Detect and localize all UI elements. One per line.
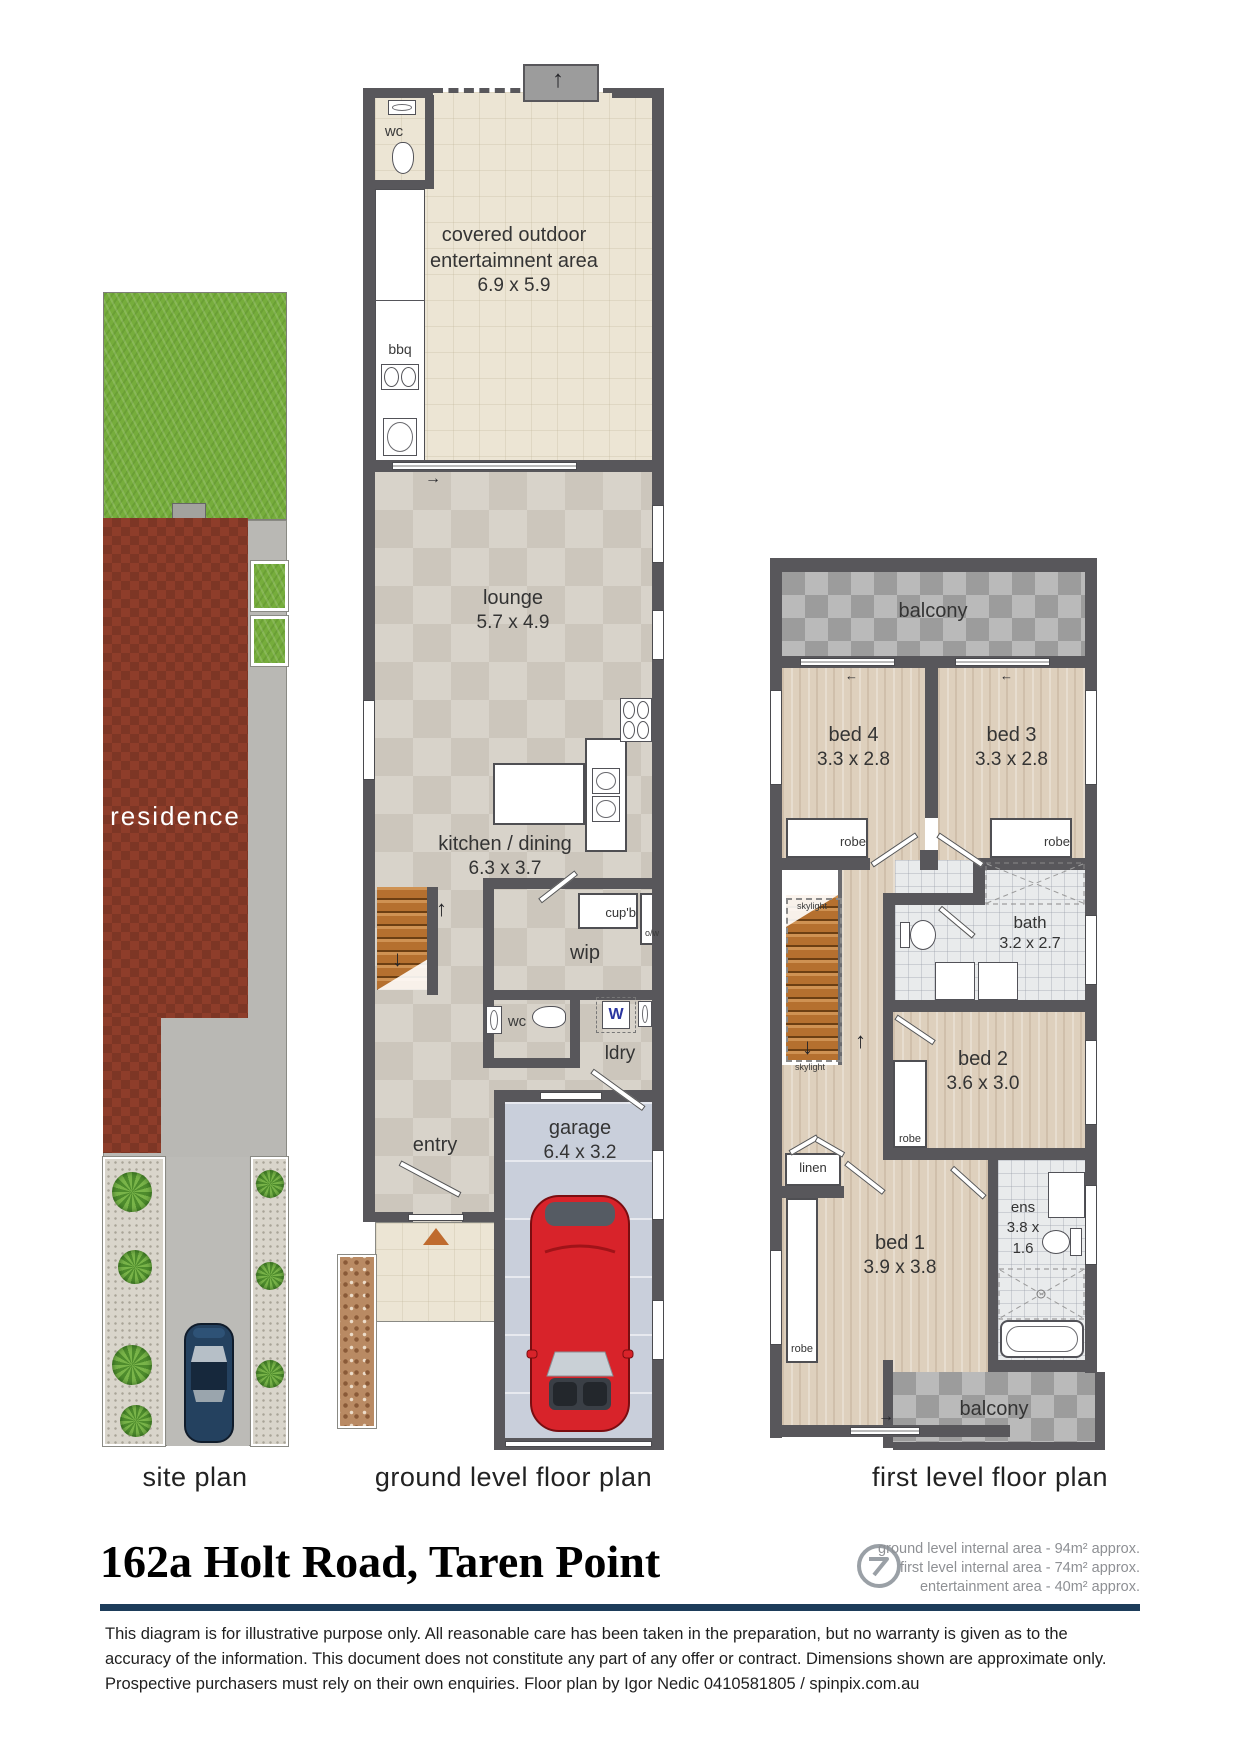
wall [363, 95, 375, 1222]
divider-rule [100, 1604, 1140, 1611]
wall [1095, 1372, 1105, 1448]
area-line: ground level internal area - 94m² approx… [740, 1540, 1140, 1559]
lounge-label: lounge 5.7 x 4.9 [413, 585, 613, 636]
plant-icon [112, 1345, 152, 1385]
bath-label: bath 3.2 x 2.7 [980, 912, 1080, 955]
window [1085, 1185, 1097, 1265]
cooktop-icon [381, 364, 419, 390]
wall [652, 88, 664, 1450]
skylight-label-top: skylight [786, 901, 838, 913]
bed2-label: bed 2 3.6 x 3.0 [908, 1046, 1058, 1097]
area-line: first level internal area - 74m² approx. [740, 1559, 1140, 1578]
wall [883, 1148, 1085, 1160]
window [652, 505, 664, 563]
up-arrow-icon: ↑ [436, 896, 447, 922]
up-arrow-icon: ↑ [855, 1028, 866, 1054]
window [652, 610, 664, 660]
ens-label: ens 3.8 x 1.6 [990, 1198, 1056, 1259]
site-plan-caption: site plan [103, 1462, 287, 1493]
sliding-door [800, 658, 895, 666]
cupboard-label: cup'b [580, 905, 636, 922]
planter-box [251, 616, 288, 666]
porch-arrow-icon [423, 1228, 449, 1245]
left-arrow-icon: ← [1000, 668, 1013, 683]
sliding-door [392, 462, 577, 470]
toilet-icon [910, 920, 936, 950]
window [770, 690, 782, 785]
toilet-icon [392, 142, 414, 174]
down-arrow-icon: ↓ [392, 946, 403, 972]
wall [425, 95, 434, 187]
plant-icon [118, 1250, 152, 1284]
linen-label: linen [785, 1160, 841, 1177]
toilet-icon [532, 1006, 566, 1028]
wall [883, 893, 895, 1012]
bed4-label: bed 4 3.3 x 2.8 [782, 722, 925, 773]
down-arrow-icon: ↓ [802, 1034, 813, 1060]
sliding-door [850, 1427, 920, 1435]
wall [483, 990, 664, 1000]
residence-area-extension [103, 1017, 161, 1153]
right-arrow-icon: → [425, 470, 441, 488]
residence-label: residence [103, 800, 248, 834]
plant-icon [120, 1405, 152, 1437]
window [652, 1300, 664, 1360]
toilet-icon [1070, 1228, 1082, 1256]
balcony-top-label: balcony [833, 598, 1033, 624]
window [1085, 915, 1097, 985]
vanity-basin-icon [935, 962, 975, 1000]
bed3-label: bed 3 3.3 x 2.8 [938, 722, 1085, 773]
bbq-label: bbq [375, 340, 425, 358]
up-arrow-icon: ↑ [552, 66, 564, 94]
balcony-bottom-label: balcony [894, 1396, 1094, 1422]
skylight-outline [786, 898, 842, 1062]
wall [483, 1058, 580, 1068]
kitchen-label: kitchen / dining 6.3 x 3.7 [405, 831, 605, 882]
wall [363, 1212, 413, 1222]
plant-icon [256, 1360, 284, 1388]
plant-icon [112, 1172, 152, 1212]
counter-divider [375, 300, 425, 301]
window [363, 700, 375, 780]
wip-label: wip [540, 940, 630, 966]
wc-top-label: wc [375, 122, 413, 142]
cooktop-icon [620, 698, 652, 742]
entry-door [408, 1214, 464, 1221]
shower-icon [998, 1268, 1085, 1320]
sink-icon [388, 100, 416, 115]
ldry-label: ldry [580, 1042, 660, 1067]
area-summary: ground level internal area - 94m² approx… [740, 1540, 1140, 1597]
robe-bed2-label: robe [891, 1132, 929, 1146]
ground-plan-caption: ground level floor plan [363, 1462, 664, 1493]
washer-letter: W [608, 1006, 623, 1024]
entertainment-label: covered outdoor entertaimnent area 6.9 x… [404, 222, 624, 299]
bathtub-icon [1000, 1320, 1084, 1358]
page-title: 162a Holt Road, Taren Point [100, 1535, 840, 1588]
robe-bed4-label: robe [810, 834, 866, 851]
driveway-planter-right [251, 1157, 288, 1446]
double-sink-icon [592, 796, 620, 822]
plant-icon [256, 1170, 284, 1198]
floorplan-page: residence [0, 0, 1240, 1754]
washer-icon: W [602, 1001, 630, 1029]
lawn [103, 292, 287, 520]
sink-icon [383, 418, 417, 456]
garage-entry-door [540, 1092, 602, 1100]
wall [363, 180, 434, 189]
wall [770, 558, 1097, 572]
window [1085, 1040, 1097, 1125]
plant-icon [256, 1262, 284, 1290]
blue-car [181, 1322, 237, 1444]
wall [883, 1000, 1085, 1012]
vanity-basin-icon [978, 962, 1018, 1000]
red-car [525, 1192, 635, 1435]
disclaimer-text: This diagram is for illustrative purpose… [105, 1622, 1135, 1696]
wall [988, 1360, 1097, 1372]
wall [883, 893, 985, 905]
dining-table [493, 763, 585, 825]
area-line: entertainment area - 40m² approx. [740, 1578, 1140, 1597]
robe-bed3-label: robe [1014, 834, 1070, 851]
wall [925, 668, 938, 818]
wc-label: wc [500, 1012, 534, 1032]
sink-icon [638, 1001, 652, 1027]
wall [483, 889, 494, 1068]
planter-box [251, 561, 288, 611]
garage-door [505, 1441, 652, 1447]
garage-label: garage 6.4 x 3.2 [500, 1115, 660, 1166]
window [770, 1250, 782, 1345]
left-arrow-icon: ← [845, 668, 858, 683]
wall [893, 1442, 1105, 1450]
ow-label: o/w [638, 928, 666, 940]
sliding-door [955, 658, 1050, 666]
window [1085, 690, 1097, 785]
toilet-icon [900, 922, 910, 948]
wall [920, 850, 938, 870]
double-sink-icon [592, 768, 620, 794]
pebble-planter [338, 1255, 376, 1428]
entry-label: entry [385, 1132, 485, 1158]
wall [782, 858, 870, 870]
residence-area [103, 518, 248, 1018]
wall [782, 1186, 844, 1198]
bed1-label: bed 1 3.9 x 3.8 [800, 1230, 1000, 1281]
skylight-label-bottom: skylight [784, 1062, 836, 1074]
first-plan-caption: first level floor plan [790, 1462, 1190, 1493]
robe-bed1-label: robe [783, 1342, 821, 1356]
right-arrow-icon: → [878, 1408, 894, 1426]
shower-icon [985, 862, 1085, 905]
